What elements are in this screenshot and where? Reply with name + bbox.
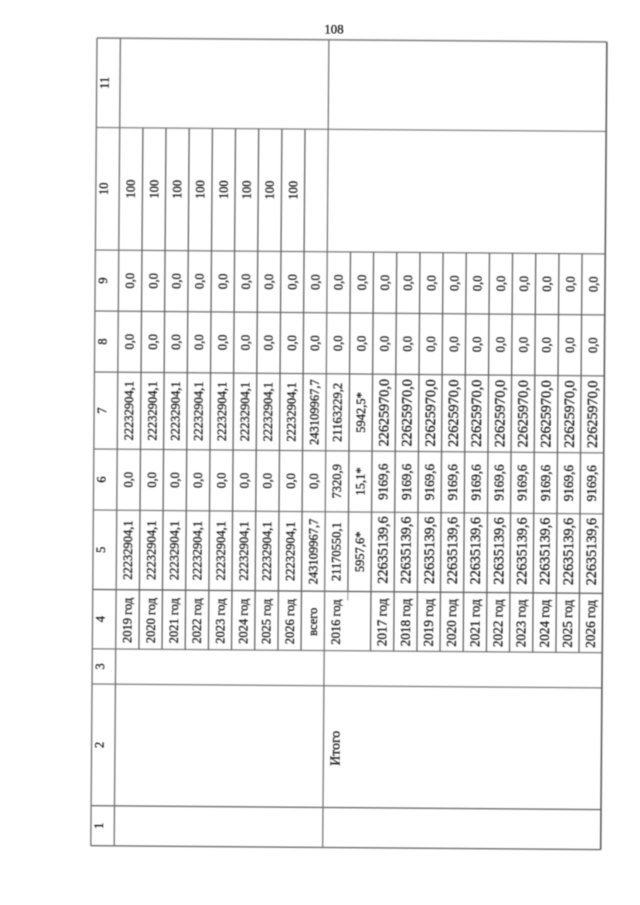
svg-text:22232904,1: 22232904,1 <box>192 382 206 441</box>
svg-text:22635139,6: 22635139,6 <box>537 518 554 586</box>
svg-text:9169,6: 9169,6 <box>538 464 553 501</box>
svg-text:2021 год: 2021 год <box>167 597 181 643</box>
svg-text:7: 7 <box>95 407 109 413</box>
svg-text:15,1*: 15,1* <box>353 467 367 495</box>
svg-text:2019 год: 2019 год <box>120 597 134 643</box>
svg-text:100: 100 <box>124 180 138 199</box>
svg-text:0,0: 0,0 <box>123 273 137 289</box>
svg-text:22635139,6: 22635139,6 <box>584 518 601 586</box>
svg-text:2025 год: 2025 год <box>560 600 575 648</box>
svg-text:0,0: 0,0 <box>170 273 184 289</box>
svg-text:22625970,0: 22625970,0 <box>492 380 509 448</box>
svg-text:2017 год: 2017 год <box>374 598 389 646</box>
svg-text:22232904,1: 22232904,1 <box>145 381 159 440</box>
svg-text:0,0: 0,0 <box>586 337 600 353</box>
svg-text:0,0: 0,0 <box>285 335 299 351</box>
svg-text:2021 год: 2021 год <box>467 599 482 647</box>
svg-text:22232904,1: 22232904,1 <box>215 382 229 441</box>
svg-text:22625970,0: 22625970,0 <box>562 380 579 448</box>
svg-text:22625970,0: 22625970,0 <box>515 380 532 448</box>
svg-text:2023 год: 2023 год <box>213 598 227 644</box>
svg-text:0,0: 0,0 <box>122 472 136 488</box>
svg-text:2018 год: 2018 год <box>398 598 413 646</box>
svg-text:2024 год: 2024 год <box>236 598 250 644</box>
svg-text:9169,6: 9169,6 <box>399 463 414 500</box>
svg-text:0,0: 0,0 <box>123 334 137 350</box>
svg-text:0,0: 0,0 <box>285 274 299 290</box>
svg-text:0,0: 0,0 <box>470 337 484 353</box>
svg-text:0,0: 0,0 <box>237 473 251 489</box>
svg-text:11: 11 <box>98 77 112 89</box>
svg-text:22232904,1: 22232904,1 <box>214 521 228 580</box>
svg-text:0,0: 0,0 <box>424 336 438 352</box>
svg-text:100: 100 <box>170 180 184 199</box>
svg-text:22635139,6: 22635139,6 <box>375 516 392 584</box>
svg-text:0,0: 0,0 <box>517 337 531 353</box>
svg-text:0,0: 0,0 <box>331 335 345 351</box>
svg-text:0,0: 0,0 <box>308 335 322 351</box>
svg-text:0,0: 0,0 <box>168 472 182 488</box>
svg-text:22635139,6: 22635139,6 <box>514 517 531 585</box>
svg-text:22625970,0: 22625970,0 <box>469 380 486 448</box>
svg-text:2: 2 <box>93 742 107 748</box>
svg-text:22232904,1: 22232904,1 <box>238 382 252 441</box>
svg-text:9: 9 <box>96 277 110 283</box>
svg-text:22625970,0: 22625970,0 <box>585 381 602 449</box>
svg-text:5: 5 <box>94 547 108 553</box>
svg-text:0,0: 0,0 <box>214 473 228 489</box>
svg-text:0,0: 0,0 <box>239 335 253 351</box>
svg-text:100: 100 <box>147 180 161 199</box>
svg-text:22625970,0: 22625970,0 <box>446 379 463 447</box>
svg-text:0,0: 0,0 <box>308 274 322 290</box>
svg-text:2024 год: 2024 год <box>537 599 552 647</box>
svg-text:2016 год: 2016 год <box>329 599 343 645</box>
svg-text:0,0: 0,0 <box>191 472 205 488</box>
svg-text:22232904,1: 22232904,1 <box>167 521 181 580</box>
svg-text:100: 100 <box>217 180 231 199</box>
svg-text:22625970,0: 22625970,0 <box>539 380 556 448</box>
svg-text:0,0: 0,0 <box>192 334 206 350</box>
svg-text:0,0: 0,0 <box>586 276 600 292</box>
svg-text:0,0: 0,0 <box>169 334 183 350</box>
svg-text:9169,6: 9169,6 <box>515 464 530 501</box>
svg-text:100: 100 <box>240 181 254 200</box>
svg-text:22232904,1: 22232904,1 <box>284 382 298 441</box>
svg-text:10: 10 <box>97 183 111 196</box>
svg-text:0,0: 0,0 <box>284 473 298 489</box>
svg-text:22635139,6: 22635139,6 <box>561 518 578 586</box>
svg-text:3: 3 <box>93 663 107 669</box>
svg-text:2022 год: 2022 год <box>490 599 505 647</box>
svg-text:9169,6: 9169,6 <box>561 465 576 502</box>
svg-text:22232904,1: 22232904,1 <box>168 381 182 440</box>
svg-text:22232904,1: 22232904,1 <box>121 520 135 579</box>
svg-text:9169,6: 9169,6 <box>422 463 437 500</box>
svg-text:21163229,2: 21163229,2 <box>331 383 345 442</box>
svg-text:7320,9: 7320,9 <box>330 464 344 498</box>
svg-text:0,0: 0,0 <box>378 275 392 291</box>
svg-text:22625970,0: 22625970,0 <box>376 379 393 447</box>
svg-text:0,0: 0,0 <box>447 275 461 291</box>
svg-text:0,0: 0,0 <box>262 274 276 290</box>
svg-text:0,0: 0,0 <box>401 336 415 352</box>
svg-text:2022 год: 2022 год <box>190 598 204 644</box>
svg-text:6: 6 <box>95 476 109 482</box>
svg-text:22232904,1: 22232904,1 <box>237 521 251 580</box>
svg-text:0,0: 0,0 <box>307 473 321 489</box>
svg-text:0,0: 0,0 <box>424 275 438 291</box>
svg-text:22625970,0: 22625970,0 <box>400 379 417 447</box>
svg-text:0,0: 0,0 <box>540 276 554 292</box>
svg-text:0,0: 0,0 <box>145 472 159 488</box>
svg-text:0,0: 0,0 <box>471 276 485 292</box>
svg-text:2020 год: 2020 год <box>444 599 459 647</box>
svg-text:Итого: Итого <box>327 731 342 766</box>
svg-text:9169,6: 9169,6 <box>468 464 483 501</box>
svg-text:0,0: 0,0 <box>354 336 368 352</box>
svg-text:243109967,7: 243109967,7 <box>307 379 322 445</box>
svg-text:2025 год: 2025 год <box>259 598 273 644</box>
svg-text:0,0: 0,0 <box>332 274 346 290</box>
svg-text:0,0: 0,0 <box>447 336 461 352</box>
svg-text:9169,6: 9169,6 <box>445 464 460 501</box>
svg-text:22232904,1: 22232904,1 <box>283 522 297 581</box>
svg-text:0,0: 0,0 <box>146 273 160 289</box>
svg-text:0,0: 0,0 <box>261 473 275 489</box>
svg-text:22635139,6: 22635139,6 <box>445 517 462 585</box>
svg-text:2026 год: 2026 год <box>583 600 598 648</box>
svg-text:0,0: 0,0 <box>193 273 207 289</box>
svg-text:0,0: 0,0 <box>494 276 508 292</box>
svg-text:108: 108 <box>324 23 343 37</box>
svg-text:0,0: 0,0 <box>378 336 392 352</box>
svg-text:0,0: 0,0 <box>401 275 415 291</box>
svg-text:5957,6*: 5957,6* <box>353 531 367 572</box>
svg-text:0,0: 0,0 <box>216 274 230 290</box>
svg-text:22625970,0: 22625970,0 <box>423 379 440 447</box>
svg-text:100: 100 <box>263 181 277 200</box>
svg-text:0,0: 0,0 <box>262 335 276 351</box>
svg-text:5942,5*: 5942,5* <box>354 392 368 433</box>
svg-text:0,0: 0,0 <box>215 335 229 351</box>
svg-text:0,0: 0,0 <box>563 276 577 292</box>
svg-text:9169,6: 9169,6 <box>584 465 599 502</box>
svg-text:22232904,1: 22232904,1 <box>190 521 204 580</box>
svg-text:9169,6: 9169,6 <box>492 464 507 501</box>
svg-text:8: 8 <box>96 338 110 344</box>
svg-text:22635139,6: 22635139,6 <box>491 517 508 585</box>
svg-text:22635139,6: 22635139,6 <box>468 517 485 585</box>
svg-text:22635139,6: 22635139,6 <box>399 516 416 584</box>
svg-text:22232904,1: 22232904,1 <box>261 382 275 441</box>
svg-text:2020 год: 2020 год <box>144 597 158 643</box>
svg-text:2026 год: 2026 год <box>283 598 297 644</box>
svg-text:9169,6: 9169,6 <box>376 463 391 500</box>
svg-text:100: 100 <box>286 181 300 200</box>
svg-text:2023 год: 2023 год <box>513 599 528 647</box>
svg-text:0,0: 0,0 <box>563 337 577 353</box>
svg-text:22232904,1: 22232904,1 <box>260 521 274 580</box>
svg-text:21170550,1: 21170550,1 <box>329 522 343 581</box>
svg-text:0,0: 0,0 <box>239 274 253 290</box>
svg-text:0,0: 0,0 <box>493 337 507 353</box>
svg-text:22232904,1: 22232904,1 <box>144 520 158 579</box>
svg-text:243109967,7: 243109967,7 <box>306 519 321 585</box>
svg-text:0,0: 0,0 <box>540 337 554 353</box>
svg-text:всего: всего <box>306 608 320 636</box>
svg-text:4: 4 <box>94 615 108 622</box>
svg-text:0,0: 0,0 <box>146 334 160 350</box>
svg-text:100: 100 <box>193 180 207 199</box>
svg-text:22232904,1: 22232904,1 <box>122 381 136 440</box>
svg-text:1: 1 <box>92 823 106 829</box>
svg-text:0,0: 0,0 <box>517 276 531 292</box>
svg-text:22635139,6: 22635139,6 <box>422 517 439 585</box>
svg-text:2019 год: 2019 год <box>421 598 436 646</box>
svg-text:0,0: 0,0 <box>355 275 369 291</box>
